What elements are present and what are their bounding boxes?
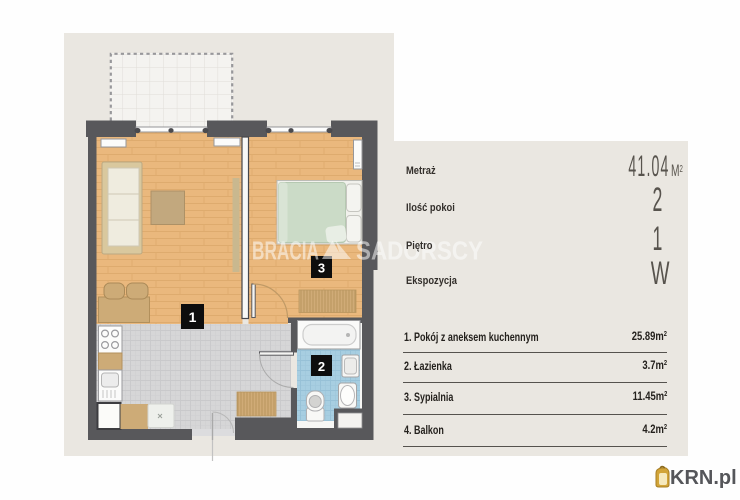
svg-text:1: 1 (189, 309, 197, 325)
svg-text:2: 2 (318, 359, 325, 374)
svg-text:KRN.pl: KRN.pl (670, 467, 737, 489)
svg-text:BRACIA: BRACIA (252, 236, 319, 266)
